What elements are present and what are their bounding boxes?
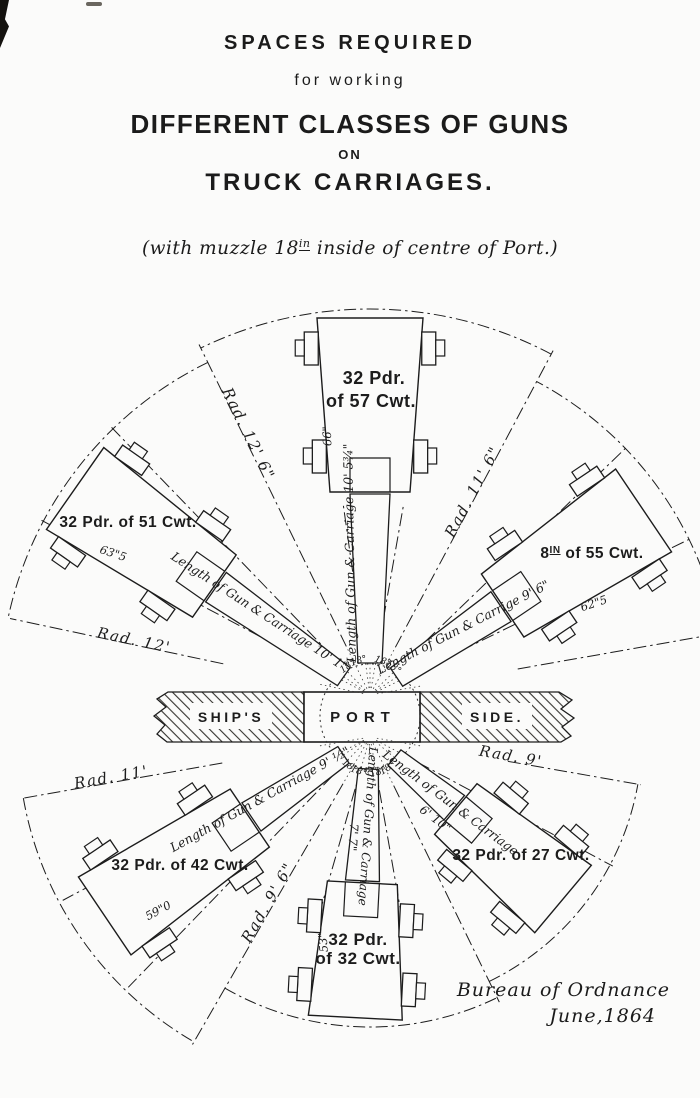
wheel-axle-stub <box>295 340 304 356</box>
wheel-axle-stub <box>303 448 312 464</box>
wheel-axle-stub <box>298 908 308 924</box>
title-line-3: DIFFERENT CLASSES OF GUNS <box>0 109 700 140</box>
wheel-axle-stub <box>436 340 445 356</box>
ships-label: SHIP'S <box>198 709 264 725</box>
wheel-axle-stub <box>413 914 423 930</box>
gun-name-label: of 57 Cwt. <box>326 391 416 411</box>
side-label: SIDE. <box>470 709 524 725</box>
subtitle-inch-sup: in <box>299 237 311 251</box>
truck-wheel <box>297 968 313 1002</box>
truck-wheel <box>414 440 428 473</box>
gun-width-label: 53" <box>315 932 331 953</box>
port-label: PORT <box>330 709 396 726</box>
gun-radius-label: Rad. 11' 6" <box>441 443 505 541</box>
gun-name-label: 32 Pdr. of 51 Cwt. <box>59 514 196 531</box>
sector-line <box>518 632 700 669</box>
gun-name-label: 32 Pdr. <box>328 930 387 949</box>
gun-name-part: 8 <box>540 545 549 562</box>
title-line-2: for working <box>0 72 700 90</box>
title-line-1: SPACES REQUIRED <box>0 32 700 55</box>
subtitle-post: inside of centre of Port.) <box>310 238 558 259</box>
title-line-4: ON <box>0 147 700 162</box>
truck-wheel <box>304 332 318 365</box>
ordnance-engraving-page: SPACES REQUIRED for working DIFFERENT CL… <box>0 0 700 1098</box>
truck-wheel <box>422 332 436 365</box>
scan-speck <box>86 2 102 6</box>
gun-name-label: 32 Pdr. <box>343 368 406 388</box>
attribution-line-1: Bureau of Ordnance <box>410 979 670 1001</box>
attribution-line-2: June,1864 <box>410 1005 670 1027</box>
gun-radius-label: Rad. 12' <box>95 623 173 656</box>
gun-name-sup: IN <box>550 545 561 556</box>
wheel-axle-stub <box>428 448 437 464</box>
truck-wheel <box>307 899 323 933</box>
gun-length-label: 7' 7" <box>345 823 361 852</box>
title-block: SPACES REQUIRED for working DIFFERENT CL… <box>0 0 700 259</box>
gun-name-label: 32 Pdr. of 27 Cwt. <box>452 847 589 864</box>
gun-radius-label: Rad. 11' <box>72 762 150 793</box>
subtitle: (with muzzle 18in inside of centre of Po… <box>0 237 700 259</box>
subtitle-pre: (with muzzle 18 <box>142 238 299 259</box>
attribution: Bureau of Ordnance June,1864 <box>410 979 670 1027</box>
gun-width-label: 66" <box>320 426 335 446</box>
wheel-axle-stub <box>288 976 298 992</box>
gun-radius-label: Rad. 9' <box>477 741 544 770</box>
truck-wheel <box>399 904 415 938</box>
gun-name-part: of 55 Cwt. <box>561 545 644 562</box>
title-line-5: TRUCK CARRIAGES. <box>0 169 700 197</box>
gun-radius-label: Rad. 12' 6" <box>218 384 279 483</box>
gun-name-label: 32 Pdr. of 42 Cwt. <box>111 857 248 874</box>
